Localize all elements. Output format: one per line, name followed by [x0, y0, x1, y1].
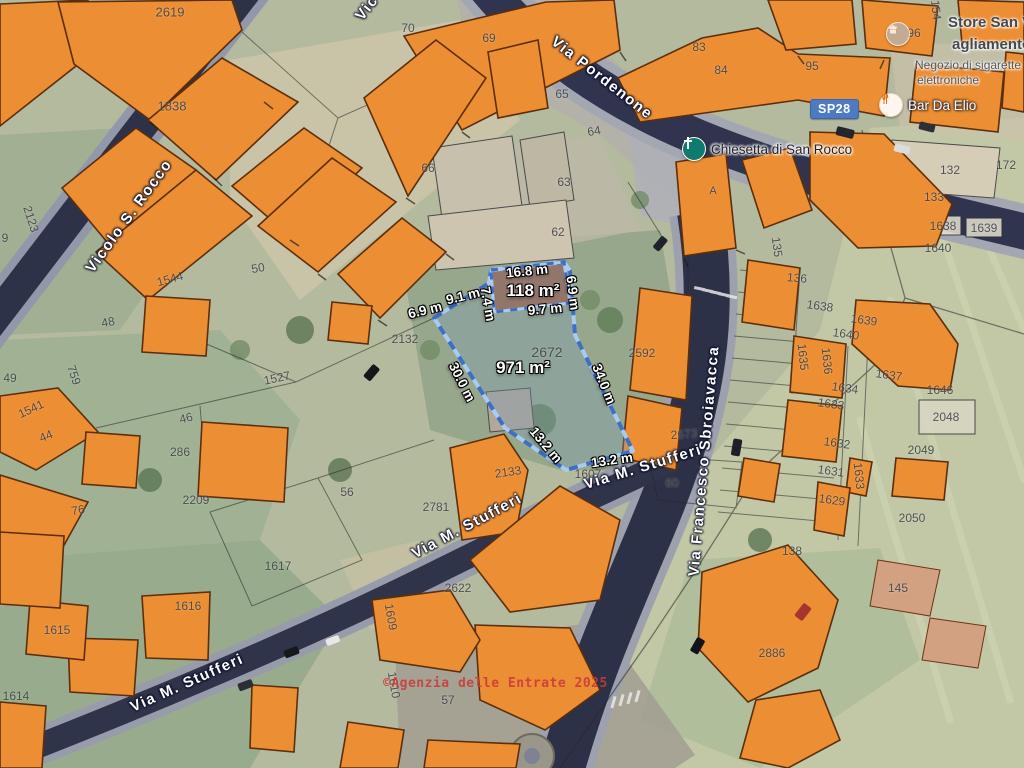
restaurant-icon[interactable]: [879, 93, 903, 117]
parcel-number: 132: [940, 163, 960, 177]
route-badge-sp28[interactable]: SP28: [810, 99, 859, 119]
edge-measurement-label: 6.9 m: [406, 299, 443, 322]
parcel-number: 2050: [899, 511, 926, 525]
parcel-number: 2622: [445, 581, 472, 595]
poi-chiesetta-di-san-rocco[interactable]: Chiesetta di San Rocco: [682, 137, 852, 161]
parcel-number: 1638: [930, 219, 957, 233]
edge-measurement-label: 9.7 m: [527, 300, 563, 318]
parcel-number: 2132: [392, 332, 419, 346]
parcel-number: 69: [482, 31, 495, 45]
parcel-number: 84: [714, 63, 727, 77]
poi-title-line: Store San Vi: [948, 14, 1024, 31]
edge-measurement-label: 30.0 m: [446, 360, 478, 404]
poi-subtitle-line: elettroniche: [917, 73, 979, 87]
parcel-number: 2781: [423, 500, 450, 514]
street-label: Vicolo S. Rocco: [82, 156, 175, 276]
parcel-number: 1632: [823, 434, 851, 452]
parcel-number: 1616: [175, 599, 202, 613]
parcel-number: 63: [557, 175, 570, 189]
parcel-number: 1637: [875, 366, 903, 384]
parcel-number: 136: [786, 270, 807, 286]
street-label: Vic: [352, 0, 382, 24]
parcel-number: 1636: [819, 347, 836, 375]
parcel-number: 2619: [156, 5, 185, 20]
poi-label: Bar Da Elio: [908, 98, 976, 113]
poi-title-line: agliamento c: [952, 36, 1024, 53]
parcel-number: 154: [928, 0, 944, 21]
parcel-number: 1640: [925, 241, 952, 255]
parcel-number: 1615: [44, 623, 71, 637]
parcel-number: 1638: [806, 297, 834, 315]
parcel-number: 1633: [851, 462, 868, 490]
poi-label: Chiesetta di San Rocco: [711, 142, 852, 157]
parcel-number: 49: [3, 371, 16, 385]
parcel-number: 1609: [382, 603, 400, 632]
parcel-number: 2209: [183, 493, 210, 507]
parcel-number: 172: [996, 158, 1016, 172]
parcel-number: 56: [340, 485, 353, 499]
parcel-number: 1617: [265, 559, 292, 573]
edge-measurement-label: 34.0 m: [589, 362, 619, 407]
parcel-number: 759: [64, 363, 84, 386]
edge-measurement-label: 6.9 m: [563, 275, 582, 311]
parcel-number: 135: [769, 236, 786, 258]
parcel-number: 1541: [16, 397, 46, 421]
parcel-number: 1639: [971, 221, 998, 235]
parcel-number: 65: [555, 87, 568, 101]
parcel-number: 46: [178, 410, 194, 427]
edge-measurement-label: 16.8 m: [505, 261, 548, 280]
parcel-number: 145: [888, 581, 908, 595]
parcel-number: 133: [924, 190, 944, 204]
poi-bar-da-elio[interactable]: Bar Da Elio: [879, 93, 976, 117]
parcel-number: 57: [441, 693, 454, 707]
store-icon[interactable]: [886, 22, 910, 46]
parcel-number: 2049: [908, 443, 935, 457]
edge-measurement-label: 13.2 m: [527, 424, 566, 466]
parcel-number: 1544: [155, 269, 184, 289]
parcel-number: A: [709, 185, 716, 197]
parcel-number: 1640: [832, 325, 860, 343]
parcel-number: 70: [401, 21, 414, 35]
poi-subtitle-line: Negozio di sigarette: [915, 58, 1021, 72]
church-cross-icon[interactable]: [682, 137, 706, 161]
parcel-number: 44: [37, 427, 55, 445]
parcel-number: 138: [782, 544, 802, 558]
parcel-area-label: 971 m²: [496, 358, 550, 378]
parcel-number: 50: [250, 260, 266, 276]
map-labels-layer: Via PordenoneVicolo S. RoccoVicVia M. St…: [0, 0, 1024, 768]
edge-measurement-label: 9.1 m: [444, 285, 481, 308]
parcel-number: 1631: [817, 462, 845, 480]
parcel-number: 1838: [158, 99, 187, 114]
parcel-number: 2673: [670, 426, 698, 442]
street-label: Via M. Stufferi: [128, 650, 247, 715]
parcel-number: 48: [100, 314, 116, 330]
parcel-area-label: 118 m²: [507, 281, 560, 301]
parcel-number: 1639: [850, 311, 878, 329]
parcel-number: 83: [692, 40, 705, 54]
parcel-number: 1646: [927, 383, 954, 397]
parcel-number: 2133: [494, 463, 522, 481]
attribution-watermark: ©Agenzia delle Entrate 2025: [383, 676, 608, 691]
parcel-number: 62: [551, 225, 564, 239]
parcel-number: 9: [2, 231, 9, 245]
parcel-number: 66: [421, 161, 434, 175]
parcel-number: 2048: [933, 410, 960, 424]
parcel-number: 286: [170, 445, 190, 459]
parcel-number: 2123: [20, 204, 42, 234]
street-label: Via Pordenone: [548, 33, 656, 123]
parcel-number: 64: [586, 123, 602, 139]
parcel-number: 95: [805, 59, 818, 73]
parcel-number: 2886: [759, 646, 786, 660]
parcel-number: 60: [665, 476, 678, 490]
parcel-number: 1633: [817, 395, 845, 413]
parcel-number: 2592: [629, 346, 656, 360]
parcel-number: 1635: [795, 343, 812, 371]
map-canvas[interactable]: Via PordenoneVicolo S. RoccoVicVia M. St…: [0, 0, 1024, 768]
parcel-number: 76: [70, 502, 86, 518]
edge-measurement-label: 7.4 m: [478, 286, 499, 323]
parcel-number: 1614: [3, 689, 30, 703]
parcel-number: 1629: [818, 491, 846, 509]
parcel-number: 1527: [262, 368, 291, 387]
parcel-number: 1634: [831, 379, 859, 397]
